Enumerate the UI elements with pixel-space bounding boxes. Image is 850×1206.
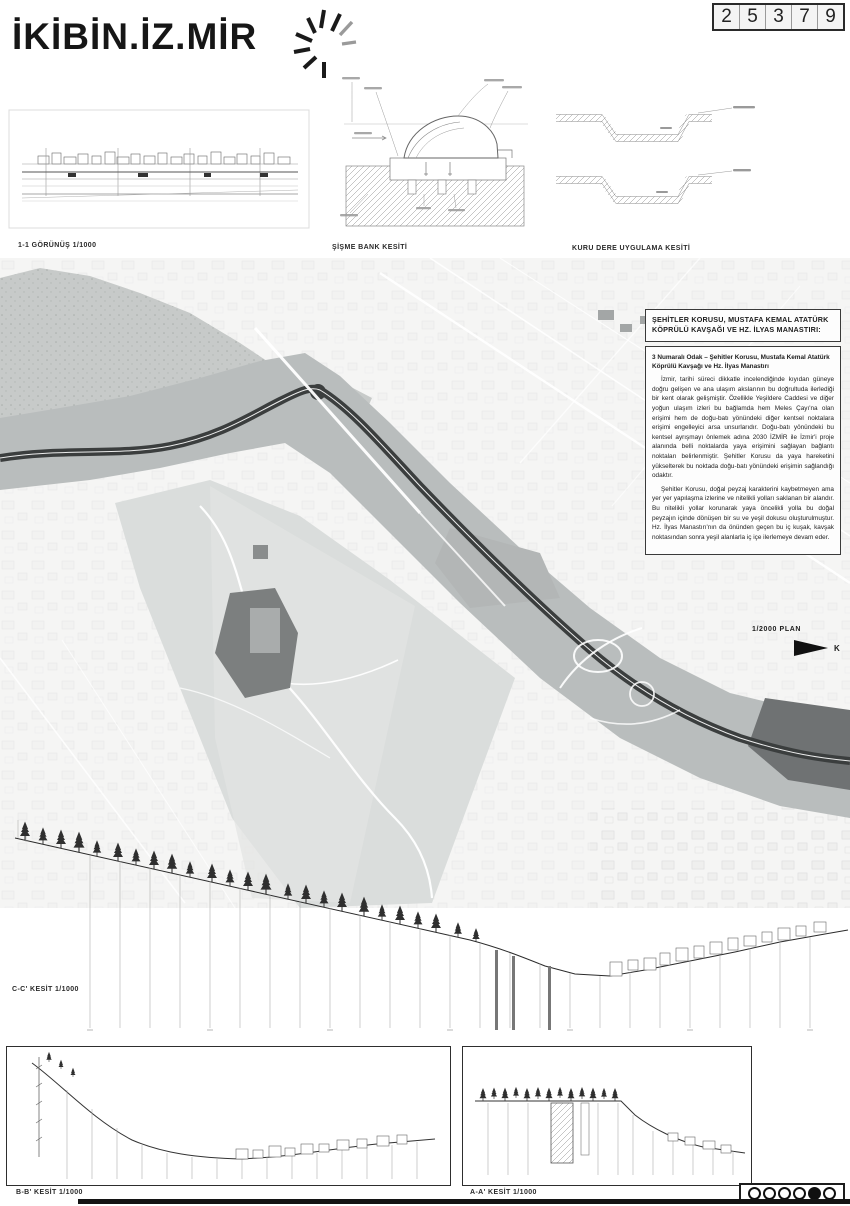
section-a-trees (480, 1087, 619, 1101)
panel-paragraph-2: Şehitler Korusu, doğal peyzaj karakterin… (652, 485, 834, 543)
panel-title: ŞEHİTLER KORUSU, MUSTAFA KEMAL ATATÜRK K… (645, 309, 841, 342)
digit-cell: 2 (714, 5, 740, 29)
page-dot[interactable] (763, 1187, 776, 1200)
caption-elevation: 1-1 GÖRÜNÜŞ 1/1000 (18, 242, 96, 249)
panel-body: 3 Numaralı Odak – Şehitler Korusu, Musta… (645, 346, 841, 556)
page-dot[interactable] (793, 1187, 806, 1200)
north-arrow-icon (790, 636, 834, 660)
section-c-trees (20, 822, 480, 943)
panel-lead: 3 Numaralı Odak – Şehitler Korusu, Musta… (652, 353, 834, 372)
elevation-drawing (8, 106, 310, 234)
logo-title: İKİBİN.İZ.MİR (12, 16, 257, 58)
section-a-drawing (462, 1046, 752, 1186)
panel-paragraph-1: İzmir, tarihi süreci dikkatle incelendiğ… (652, 375, 834, 481)
bench-detail-drawing (338, 66, 534, 242)
digit-cell: 3 (766, 5, 792, 29)
description-panel: ŞEHİTLER KORUSU, MUSTAFA KEMAL ATATÜRK K… (645, 309, 841, 555)
competition-number: 25379 (712, 3, 845, 31)
caption-section-b: B-B' KESİT 1/1000 (16, 1189, 83, 1196)
digit-cell: 5 (740, 5, 766, 29)
competition-board: İKİBİN.İZ.MİR 25379 (0, 0, 850, 1206)
bottom-bar (78, 1199, 850, 1204)
page-dot[interactable] (778, 1187, 791, 1200)
page-dot[interactable] (823, 1187, 836, 1200)
north-letter: K (834, 644, 840, 653)
page-dot-active[interactable] (808, 1187, 821, 1200)
digit-cell: 7 (792, 5, 818, 29)
caption-creek: KURU DERE UYGULAMA KESİTİ (572, 245, 690, 252)
section-c-drawing (0, 790, 850, 1045)
plan-scale-label: 1/2000 PLAN (752, 626, 801, 633)
section-b-drawing (6, 1046, 451, 1186)
caption-section-a: A-A' KESİT 1/1000 (470, 1189, 537, 1196)
page-dot[interactable] (748, 1187, 761, 1200)
creek-detail-drawing (548, 103, 798, 245)
digit-cell: 9 (818, 5, 843, 29)
caption-bench: ŞİŞME BANK KESİTİ (332, 244, 407, 251)
caption-section-c: C-C' KESİT 1/1000 (12, 986, 79, 993)
